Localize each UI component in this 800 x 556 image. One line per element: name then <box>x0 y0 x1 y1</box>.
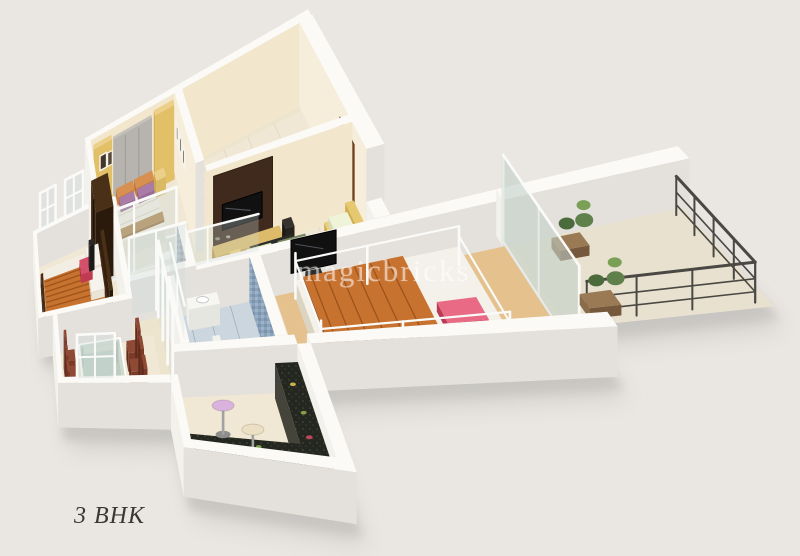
plan-title: 3 BHK <box>74 503 145 530</box>
watermark: magicbricks <box>297 253 471 289</box>
floorplan-page: magicbricks 3 BHK <box>0 0 800 556</box>
